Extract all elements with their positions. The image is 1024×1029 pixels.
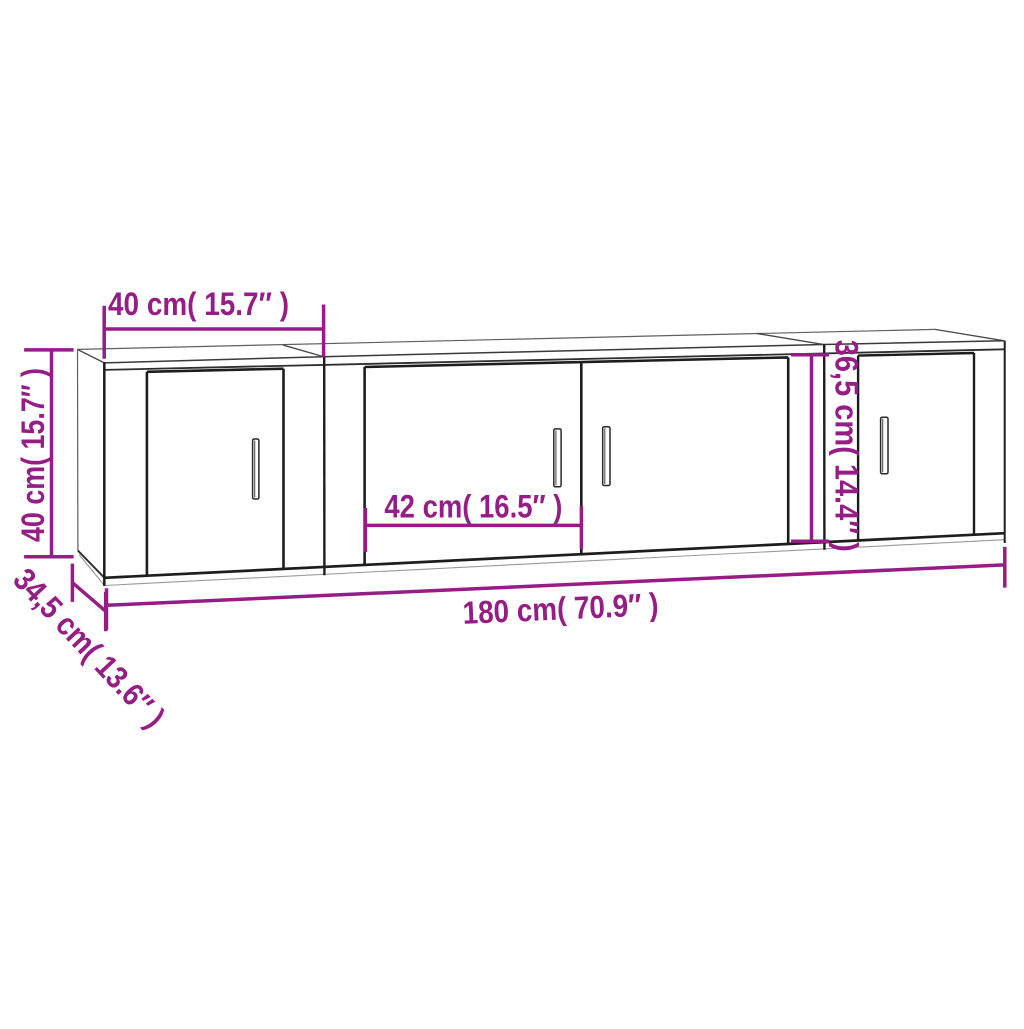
svg-text:40 cm( 15.7″ ): 40 cm( 15.7″ ) bbox=[15, 368, 51, 542]
svg-text:40 cm( 15.7″ ): 40 cm( 15.7″ ) bbox=[108, 286, 289, 322]
svg-text:36,5 cm( 14.4″ ): 36,5 cm( 14.4″ ) bbox=[828, 340, 864, 552]
svg-text:42 cm( 16.5″ ): 42 cm( 16.5″ ) bbox=[384, 489, 562, 525]
